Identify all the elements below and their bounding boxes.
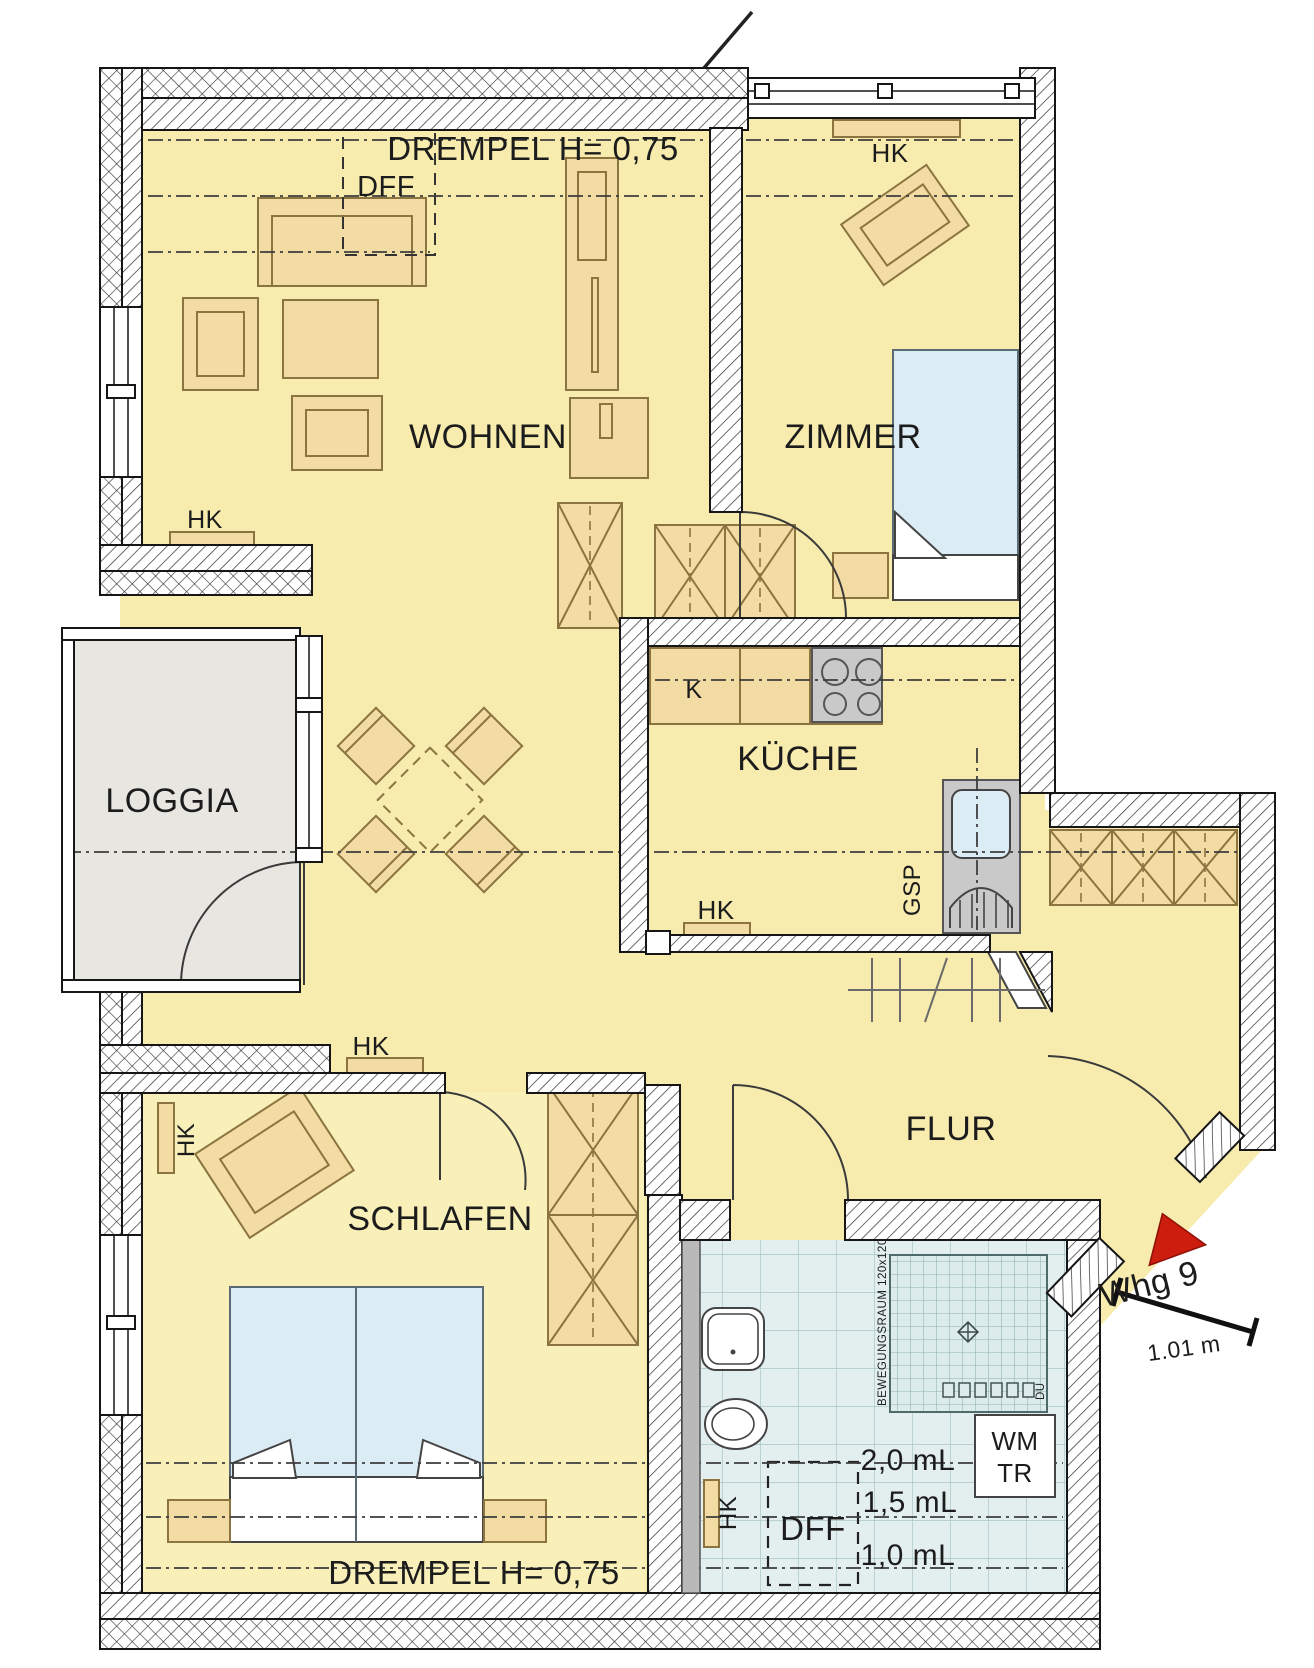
wardrobe-bedroom	[548, 1085, 638, 1345]
hk-label-living: HK	[187, 506, 223, 534]
window-bedroom-left	[100, 1235, 142, 1415]
floorplan-page: WOHNEN ZIMMER KÜCHE FLUR SCHLAFEN LOGGIA…	[0, 0, 1314, 1668]
dff-label-living: DFF	[357, 171, 415, 203]
hk-label-hall: HK	[697, 895, 734, 925]
hk-label-bath: HK	[715, 1496, 742, 1530]
wardrobe-zimmer	[655, 525, 795, 628]
hk-label-zimmer: HK	[871, 138, 908, 168]
wardrobe-hall	[1050, 830, 1237, 905]
movement-area-label: BEWEGUNGSRAUM 120x120	[877, 1238, 889, 1406]
tr-label: TR	[997, 1458, 1033, 1488]
fridge-label: K	[685, 676, 702, 704]
room-label-zimmer: ZIMMER	[784, 418, 921, 456]
coffee-table	[283, 300, 378, 378]
room-label-wohnen: WOHNEN	[409, 418, 567, 456]
radiator-zimmer	[833, 120, 960, 137]
hk-label-dining: HK	[352, 1031, 389, 1061]
height-label-20: 2,0 mL	[861, 1444, 956, 1477]
room-label-schlafen: SCHLAFEN	[347, 1200, 532, 1238]
nightstand-zimmer	[833, 553, 888, 598]
hk-label-bedroom: HK	[173, 1123, 200, 1157]
window-living-left	[100, 307, 142, 477]
wardrobe-living	[558, 503, 622, 628]
stove	[812, 648, 882, 722]
radiator-bedroom	[158, 1103, 174, 1173]
room-label-kueche: KÜCHE	[737, 740, 859, 778]
door-width-label: 1.01 m	[1146, 1330, 1222, 1366]
bath-sink	[702, 1308, 764, 1370]
shower-label: DU	[1035, 1382, 1047, 1400]
gsp-label: GSP	[899, 864, 926, 916]
nightstand-right	[484, 1500, 546, 1542]
bed-double	[230, 1287, 483, 1542]
room-label-flur: FLUR	[906, 1110, 997, 1148]
height-label-10: 1,0 mL	[861, 1539, 956, 1572]
drempel-label-top: DREMPEL H= 0,75	[387, 130, 678, 167]
nightstand-left	[168, 1500, 230, 1542]
room-label-loggia: LOGGIA	[105, 782, 238, 820]
height-label-15: 1,5 mL	[863, 1486, 958, 1519]
floorplan-drawing: WOHNEN ZIMMER KÜCHE FLUR SCHLAFEN LOGGIA…	[0, 0, 1314, 1668]
wm-label: WM	[991, 1426, 1038, 1456]
dff-label-bath: DFF	[780, 1510, 846, 1547]
kitchen-sink-unit	[943, 780, 1020, 933]
window-zimmer-top	[748, 78, 1035, 118]
drempel-label-bottom: DREMPEL H= 0,75	[328, 1554, 619, 1591]
bed-zimmer	[893, 350, 1018, 600]
